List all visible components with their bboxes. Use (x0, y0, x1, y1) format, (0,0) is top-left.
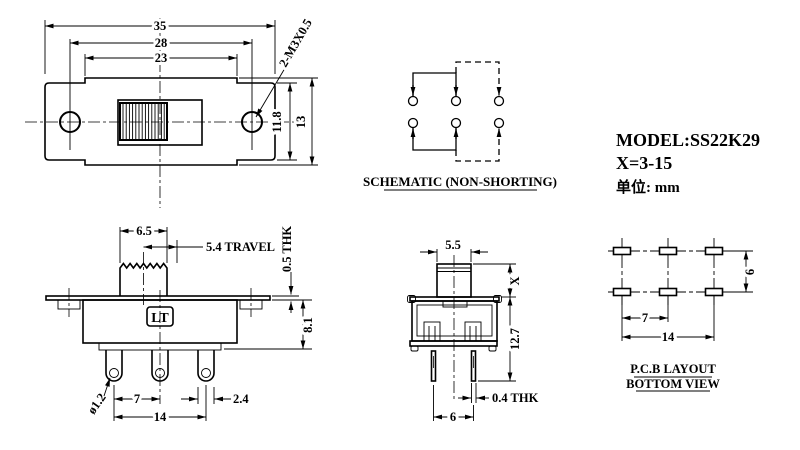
end-pins (432, 351, 476, 381)
front-view: 35 28 23 2-M3X0.5 11.8 13 (25, 16, 318, 208)
dim-body-height: 8.1 (301, 317, 315, 333)
model-number: MODEL:SS22K29 (616, 130, 760, 150)
pole2-solid-link (413, 128, 456, 150)
dim-pin-thickness: 0.4 THK (492, 391, 539, 405)
pcb-layout: 6 7 14 P.C.B LAYOUT BOTTOM VIEW (608, 238, 757, 391)
side-view-dimensions: 6.5 5.4 TRAVEL 0.5 THK 8.1 ø1.2 7 14 (85, 224, 315, 424)
dim-inner-height: 11.8 (270, 111, 284, 132)
x-range: X=3-15 (616, 153, 672, 173)
unit-note: 单位: mm (616, 178, 680, 196)
dim-terminal-width: 2.4 (233, 392, 249, 406)
end-base-flange (410, 341, 497, 346)
dim-knob-height-x: X (508, 276, 522, 285)
pcb-caption-line2: BOTTOM VIEW (626, 377, 720, 391)
schematic-caption: SCHEMATIC (NON-SHORTING) (363, 174, 557, 189)
schematic-terminals (409, 97, 504, 128)
dim-overall-height: 13 (294, 116, 308, 129)
dim-plate-thickness: 0.5 THK (280, 226, 294, 273)
front-view-dimensions: 35 28 23 2-M3X0.5 11.8 13 (45, 16, 318, 165)
knob-serrations (123, 104, 164, 139)
dim-overall-width: 35 (154, 19, 167, 33)
dim-travel: 5.4 TRAVEL (206, 240, 275, 254)
pole1-solid-link (413, 73, 456, 96)
dim-hole-spacing: 28 (155, 36, 168, 50)
dim-slot-span: 23 (155, 51, 168, 65)
dim-row-spacing: 6 (743, 269, 757, 275)
dim-end-knob-width: 5.5 (445, 238, 461, 252)
pcb-caption-line1: P.C.B LAYOUT (630, 362, 716, 376)
side-view-centerlines (69, 252, 251, 404)
schematic: SCHEMATIC (NON-SHORTING) (363, 62, 557, 190)
dim-end-body-height: 12.7 (508, 328, 522, 350)
dim-terminal-pitch: 7 (134, 392, 140, 406)
end-top-slot (443, 301, 467, 307)
side-view: LT 6.5 5.4 TRAVEL 0.5 THK 8.1 (46, 224, 315, 424)
dim-pin-spacing: 6 (450, 410, 456, 424)
drawing-canvas: 35 28 23 2-M3X0.5 11.8 13 (0, 0, 800, 450)
dim-pad-pitch: 7 (642, 311, 648, 325)
dim-hole-diameter: ø1.2 (85, 391, 109, 417)
contact-posts (424, 322, 481, 341)
end-view: 5.5 X 12.7 0.4 THK 6 (408, 238, 539, 424)
dim-terminal-span: 14 (154, 410, 167, 424)
dim-knob-width: 6.5 (136, 224, 152, 238)
pcb-dimensions: 6 7 14 (622, 251, 757, 344)
thread-callout: 2-M3X0.5 (276, 16, 315, 69)
title-block: MODEL:SS22K29 X=3-15 单位: mm (616, 130, 760, 196)
pole2-dashed-link (456, 136, 499, 161)
technical-drawing-page: 35 28 23 2-M3X0.5 11.8 13 (0, 0, 800, 450)
pole1-dashed-link (456, 62, 499, 88)
dim-pad-span: 14 (662, 330, 675, 344)
